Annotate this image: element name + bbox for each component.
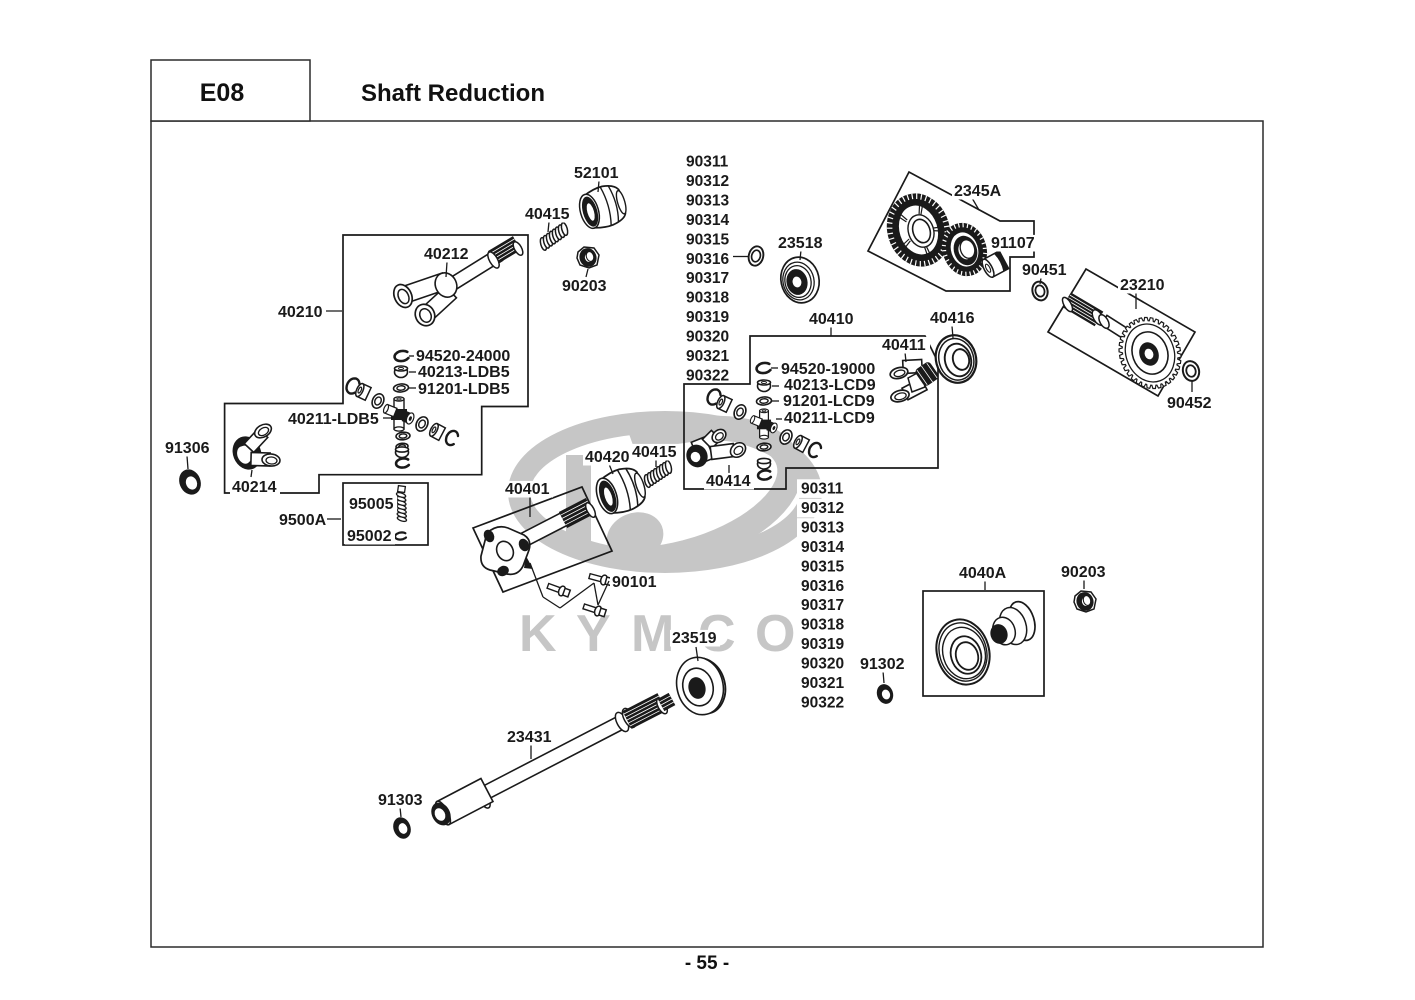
svg-text:95002: 95002 — [347, 528, 392, 545]
svg-text:- 55 -: - 55 - — [685, 953, 729, 974]
svg-text:90452: 90452 — [1167, 395, 1212, 412]
svg-text:40410: 40410 — [809, 311, 854, 328]
svg-text:91302: 91302 — [860, 656, 905, 673]
svg-text:90315: 90315 — [801, 558, 844, 575]
svg-text:90321: 90321 — [801, 675, 844, 692]
svg-text:90203: 90203 — [562, 278, 607, 295]
svg-text:Shaft Reduction: Shaft Reduction — [361, 80, 545, 107]
svg-text:40211-LDB5: 40211-LDB5 — [288, 411, 379, 428]
svg-text:90319: 90319 — [686, 309, 729, 326]
svg-text:K: K — [519, 605, 557, 663]
svg-text:23210: 23210 — [1120, 277, 1165, 294]
svg-text:40415: 40415 — [525, 206, 570, 223]
svg-text:90451: 90451 — [1022, 262, 1067, 279]
svg-text:23431: 23431 — [507, 729, 552, 746]
svg-text:40415: 40415 — [632, 444, 677, 461]
svg-text:40211-LCD9: 40211-LCD9 — [784, 410, 875, 427]
svg-text:23518: 23518 — [778, 235, 823, 252]
svg-text:40411: 40411 — [882, 337, 926, 354]
svg-text:90312: 90312 — [686, 173, 729, 190]
svg-text:90315: 90315 — [686, 231, 729, 248]
svg-text:90101: 90101 — [612, 574, 657, 591]
svg-text:90318: 90318 — [801, 617, 844, 634]
svg-text:91107: 91107 — [991, 235, 1035, 252]
svg-text:90321: 90321 — [686, 348, 729, 365]
svg-text:90203: 90203 — [1061, 564, 1106, 581]
svg-text:90320: 90320 — [686, 329, 729, 346]
svg-text:O: O — [755, 605, 795, 663]
svg-text:91201-LCD9: 91201-LCD9 — [783, 393, 875, 410]
svg-text:9500A: 9500A — [279, 512, 327, 529]
svg-text:90313: 90313 — [686, 192, 729, 209]
svg-text:E08: E08 — [200, 79, 245, 107]
svg-text:91306: 91306 — [165, 440, 210, 457]
svg-text:M: M — [631, 605, 674, 663]
svg-text:90312: 90312 — [801, 500, 844, 517]
svg-text:90322: 90322 — [801, 695, 844, 712]
svg-text:90318: 90318 — [686, 290, 729, 307]
svg-text:40210: 40210 — [278, 304, 323, 321]
svg-text:90316: 90316 — [801, 578, 844, 595]
svg-text:90320: 90320 — [801, 656, 844, 673]
svg-text:90317: 90317 — [686, 270, 729, 287]
svg-text:40401: 40401 — [505, 481, 550, 498]
svg-text:95005: 95005 — [349, 496, 394, 513]
svg-text:40414: 40414 — [706, 473, 751, 490]
svg-text:40214: 40214 — [232, 479, 277, 496]
svg-text:40213-LCD9: 40213-LCD9 — [784, 377, 876, 394]
svg-text:90314: 90314 — [686, 212, 729, 229]
svg-text:90319: 90319 — [801, 636, 844, 653]
svg-text:91201-LDB5: 91201-LDB5 — [418, 381, 510, 398]
svg-text:91303: 91303 — [378, 792, 423, 809]
svg-text:94520-24000: 94520-24000 — [416, 348, 510, 365]
svg-text:90322: 90322 — [686, 367, 729, 384]
svg-text:2345A: 2345A — [954, 183, 1002, 200]
svg-text:4040A: 4040A — [959, 565, 1007, 582]
svg-text:90317: 90317 — [801, 597, 844, 614]
svg-text:40212: 40212 — [424, 246, 469, 263]
svg-text:90311: 90311 — [686, 154, 729, 171]
svg-text:52101: 52101 — [574, 165, 619, 182]
svg-text:90316: 90316 — [686, 251, 729, 268]
svg-text:40416: 40416 — [930, 310, 975, 327]
svg-text:23519: 23519 — [672, 630, 717, 647]
svg-text:90314: 90314 — [801, 539, 844, 556]
svg-text:94520-19000: 94520-19000 — [781, 361, 875, 378]
svg-text:90311: 90311 — [801, 481, 844, 498]
svg-text:40420: 40420 — [585, 449, 630, 466]
svg-text:40213-LDB5: 40213-LDB5 — [418, 364, 510, 381]
svg-text:90313: 90313 — [801, 519, 844, 536]
